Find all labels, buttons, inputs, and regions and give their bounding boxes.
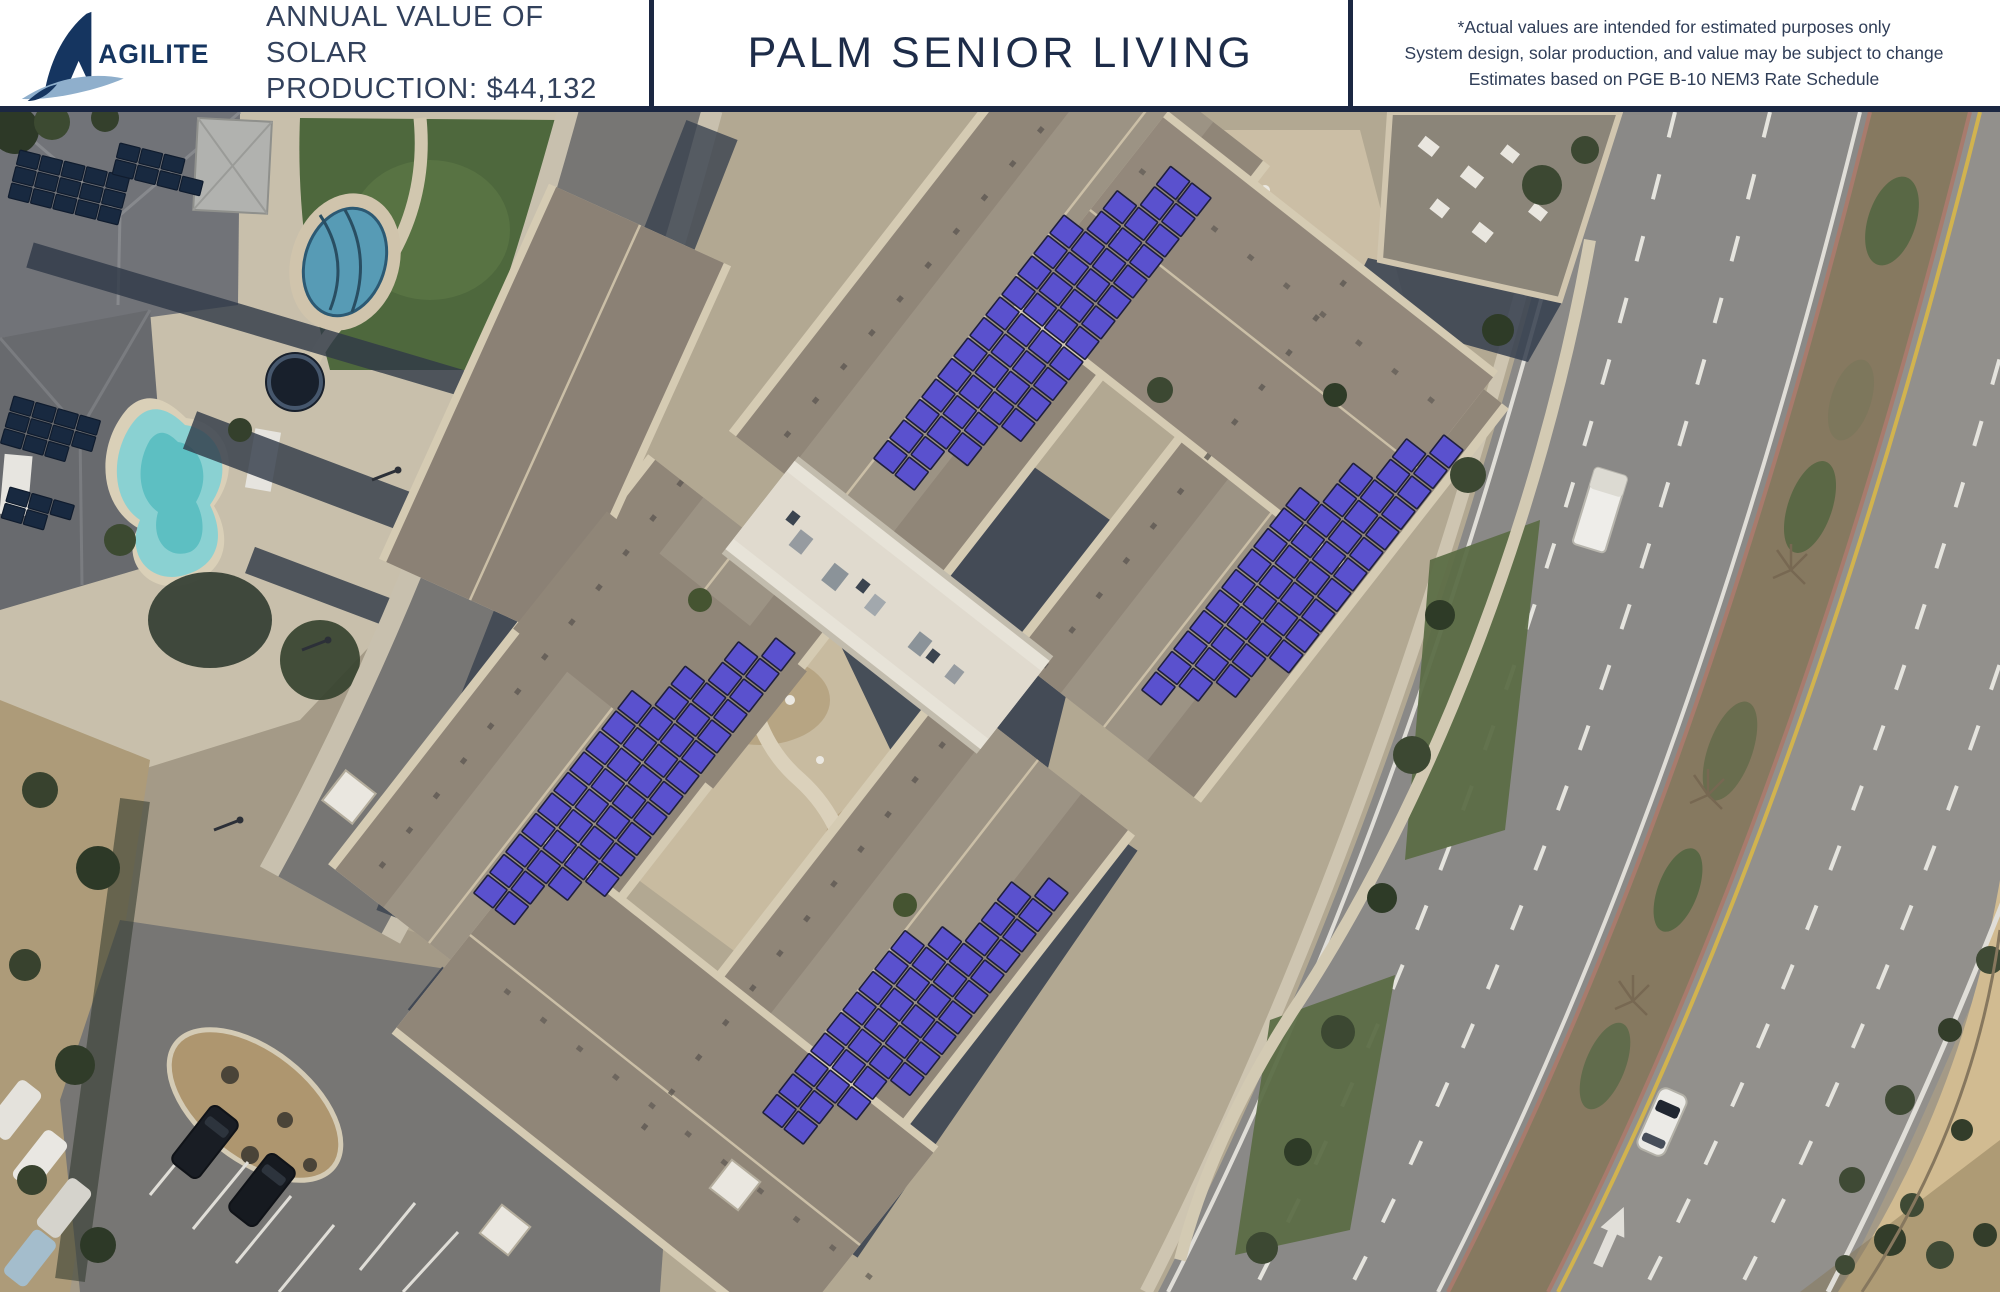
solar-proposal-page: AGILITECH ANNUAL VALUE OF SOLAR PRODUCTI… — [0, 0, 2000, 1292]
color-cast-overlay — [0, 0, 2000, 1292]
aerial-map — [0, 0, 2000, 1292]
page-title: PALM SENIOR LIVING — [748, 29, 1255, 78]
disclaimer-line1: *Actual values are intended for estimate… — [1458, 14, 1891, 40]
annual-value-text: ANNUAL VALUE OF SOLAR PRODUCTION: $44,13… — [266, 0, 649, 107]
header-title-section: PALM SENIOR LIVING — [649, 0, 1353, 106]
annual-value-line2: PRODUCTION: $44,132 — [266, 71, 649, 107]
agilitech-logo-icon: AGILITECH — [12, 3, 208, 103]
header-bar: AGILITECH ANNUAL VALUE OF SOLAR PRODUCTI… — [0, 0, 2000, 112]
header-production-section: AGILITECH ANNUAL VALUE OF SOLAR PRODUCTI… — [0, 0, 649, 106]
annual-value-line1: ANNUAL VALUE OF SOLAR — [266, 0, 649, 71]
disclaimer-line2: System design, solar production, and val… — [1405, 40, 1944, 66]
header-disclaimer-section: *Actual values are intended for estimate… — [1353, 0, 1995, 106]
brand-text: AGILITECH — [98, 39, 208, 69]
disclaimer-line3: Estimates based on PGE B-10 NEM3 Rate Sc… — [1469, 66, 1880, 92]
